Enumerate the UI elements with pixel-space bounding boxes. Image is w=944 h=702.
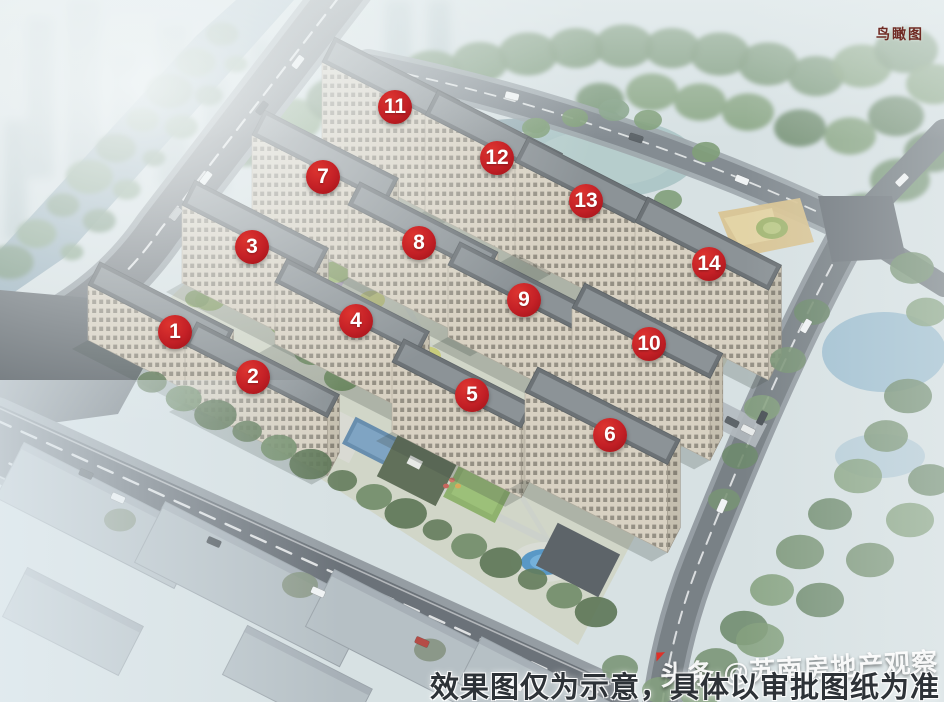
building-badge-6: 6 xyxy=(593,418,627,452)
building-badge-13: 13 xyxy=(569,184,603,218)
building-badge-7: 7 xyxy=(306,160,340,194)
building-badge-9: 9 xyxy=(507,283,541,317)
badge-layer: 1234567891011121314 xyxy=(0,0,944,702)
building-badge-11: 11 xyxy=(378,90,412,124)
building-badge-3: 3 xyxy=(235,230,269,264)
building-badge-4: 4 xyxy=(339,304,373,338)
building-badge-12: 12 xyxy=(480,141,514,175)
building-badge-10: 10 xyxy=(632,327,666,361)
disclaimer-text: 效果图仅为示意，具体以审批图纸为准 xyxy=(430,664,940,702)
building-badge-5: 5 xyxy=(455,378,489,412)
building-badge-8: 8 xyxy=(402,226,436,260)
view-type-label: 鸟瞰图 xyxy=(876,24,924,44)
aerial-rendering: 1234567891011121314 鸟瞰图 头条 @苏南房地产观察 效果图仅… xyxy=(0,0,944,702)
building-badge-14: 14 xyxy=(692,247,726,281)
building-badge-2: 2 xyxy=(236,360,270,394)
building-badge-1: 1 xyxy=(158,315,192,349)
